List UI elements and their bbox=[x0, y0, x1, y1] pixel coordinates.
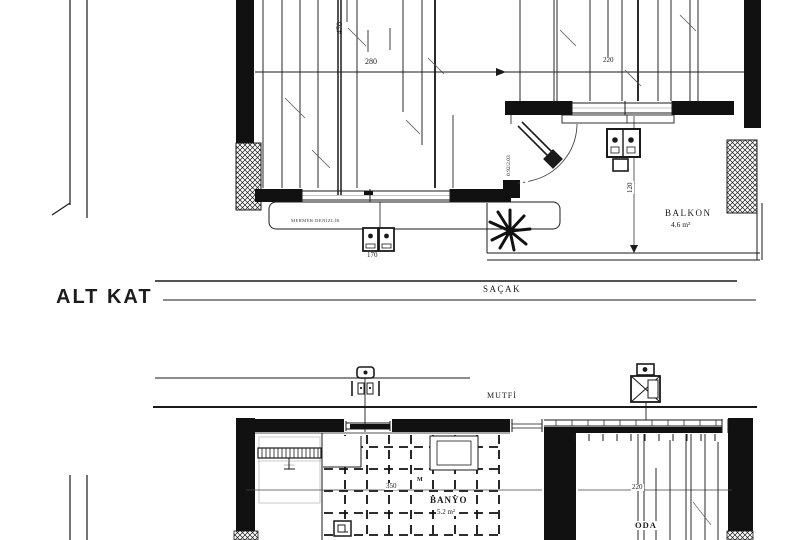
window-sill bbox=[562, 115, 674, 123]
lower-right-wall bbox=[728, 418, 753, 531]
site-boundary-lines bbox=[52, 0, 87, 540]
lower-plan bbox=[234, 418, 753, 540]
label-sacak: SAÇAK bbox=[483, 285, 521, 294]
dim-oda-width: 220 bbox=[631, 484, 644, 491]
label-oda: ODA bbox=[634, 521, 658, 530]
floor-title: ALT KAT bbox=[56, 287, 153, 307]
column-hatch-icon bbox=[727, 140, 757, 213]
upper-left-wall bbox=[236, 0, 254, 143]
dim-upper-span-left: 280 bbox=[364, 58, 378, 66]
deck-lines-left bbox=[263, 0, 453, 195]
shaft-wall bbox=[544, 433, 576, 540]
dim-balcony-depth: 120 bbox=[627, 182, 634, 195]
dim-door-size: 0.92/2.03 bbox=[507, 155, 513, 176]
mutfak-lines bbox=[153, 378, 757, 407]
basin-fixture bbox=[430, 436, 478, 470]
door-leaf-faint bbox=[259, 437, 320, 503]
shower-area bbox=[323, 436, 361, 467]
water-heater-icon bbox=[631, 364, 660, 420]
dim-appliance-width: 170 bbox=[367, 252, 378, 259]
dim-upper-span-right: 220 bbox=[602, 57, 615, 64]
sacak-lines bbox=[155, 281, 756, 300]
label-mutfak: MUTFİ bbox=[487, 392, 517, 400]
floor-drain-icon bbox=[334, 521, 351, 536]
dim-banyo-width: 350 bbox=[385, 483, 398, 490]
label-balkon-area: 4.6 m² bbox=[671, 221, 690, 229]
upper-window-wall bbox=[511, 101, 734, 123]
label-banyo: BANYO bbox=[429, 496, 469, 505]
door-threshold bbox=[346, 421, 390, 431]
column-hatch-icon bbox=[727, 531, 753, 540]
upper-right-wall bbox=[744, 0, 761, 128]
door-opening bbox=[512, 419, 542, 432]
stove-icon bbox=[607, 129, 640, 171]
floor-plan-canvas: ALT KAT SAÇAK MUTFİ BALKON 4.6 m² 280 22… bbox=[0, 0, 800, 540]
upper-bottom-wall bbox=[255, 189, 511, 202]
valve-icon bbox=[352, 367, 379, 432]
label-sill: MERMER DENİZLİK bbox=[291, 219, 340, 224]
marker-m: M bbox=[417, 477, 423, 483]
plan-linework bbox=[0, 0, 800, 540]
dimension-arrow-icon bbox=[496, 68, 506, 76]
label-balkon: BALKON bbox=[665, 209, 712, 218]
column-hatch-icon bbox=[234, 531, 258, 540]
label-banyo-area: 5.2 m² bbox=[436, 509, 456, 516]
dim-upper-vertical: 470 bbox=[336, 22, 344, 34]
dimension-arrow-icon bbox=[630, 245, 638, 253]
radiator-icon bbox=[258, 448, 321, 469]
deck-lines-right bbox=[520, 0, 698, 101]
stove-icon bbox=[363, 228, 394, 251]
lower-left-wall bbox=[236, 418, 255, 531]
